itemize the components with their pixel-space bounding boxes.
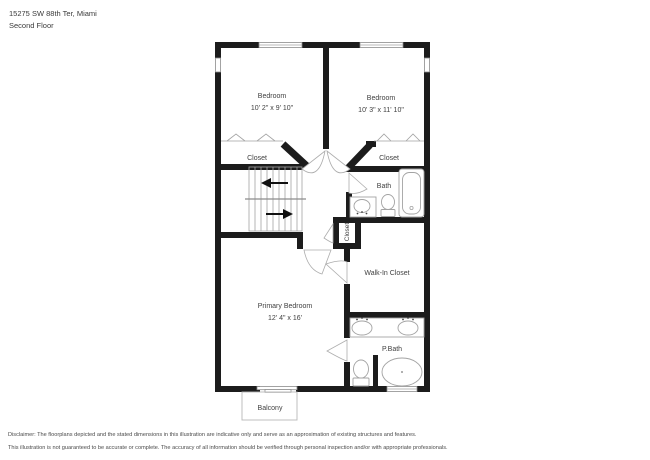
room-dims-bedroom-right: 10' 3" x 11' 10" — [358, 107, 404, 114]
room-label-closet-mid: Closet — [344, 223, 351, 242]
room-label-closet-left: Closet — [247, 155, 267, 162]
bedroom-right-door-arc — [327, 151, 350, 173]
room-label-bath: Bath — [377, 183, 392, 190]
room-label-walk-in-closet: Walk-In Closet — [364, 270, 409, 277]
p-bath-sink-right-icon — [398, 321, 418, 335]
room-label-bedroom-right: Bedroom — [367, 95, 396, 102]
p-bath-tub-icon — [382, 358, 422, 386]
disclaimer-line-2: This illustration is not guaranteed to b… — [8, 442, 448, 455]
room-label-primary-bedroom: Primary Bedroom — [258, 303, 313, 310]
walk-in-closet-door-arc — [326, 261, 347, 283]
closet-door-chevrons — [221, 134, 424, 141]
bath-fixtures — [350, 169, 424, 217]
room-label-closet-right: Closet — [379, 155, 399, 162]
primary-bedroom-door-arc — [304, 250, 331, 274]
floorplan-page: 15275 SW 88th Ter, Miami Second Floor — [0, 0, 650, 460]
bath-door-arc — [349, 173, 367, 194]
floorplan-drawing: Bedroom 10' 2" x 9' 10" Bedroom 10' 3" x… — [0, 0, 650, 460]
interior-walls — [221, 48, 430, 392]
stairs-down-arrow-icon — [266, 209, 293, 219]
room-label-bedroom-left: Bedroom — [258, 93, 287, 100]
p-bath-door-arc — [327, 340, 347, 361]
bath-bathtub-icon — [399, 169, 424, 217]
room-dims-bedroom-left: 10' 2" x 9' 10" — [251, 105, 294, 112]
bath-sink-icon — [354, 200, 370, 213]
room-dims-primary-bedroom: 12' 4" x 16' — [268, 315, 302, 322]
window-right-wall — [425, 58, 430, 72]
bath-toilet-icon — [381, 195, 395, 217]
stairs-up-arrow-icon — [261, 178, 288, 188]
room-label-p-bath: P.Bath — [382, 346, 402, 353]
p-bath-sink-left-icon — [352, 321, 372, 335]
p-bath-toilet-icon — [353, 360, 369, 386]
window-left-wall — [216, 58, 221, 72]
staircase — [245, 167, 306, 231]
mid-closet-door-arc — [324, 224, 333, 243]
room-label-balcony: Balcony — [258, 405, 283, 412]
disclaimer-line-1: Disclaimer: The floorplans depicted and … — [8, 429, 448, 442]
disclaimer: Disclaimer: The floorplans depicted and … — [8, 429, 448, 455]
